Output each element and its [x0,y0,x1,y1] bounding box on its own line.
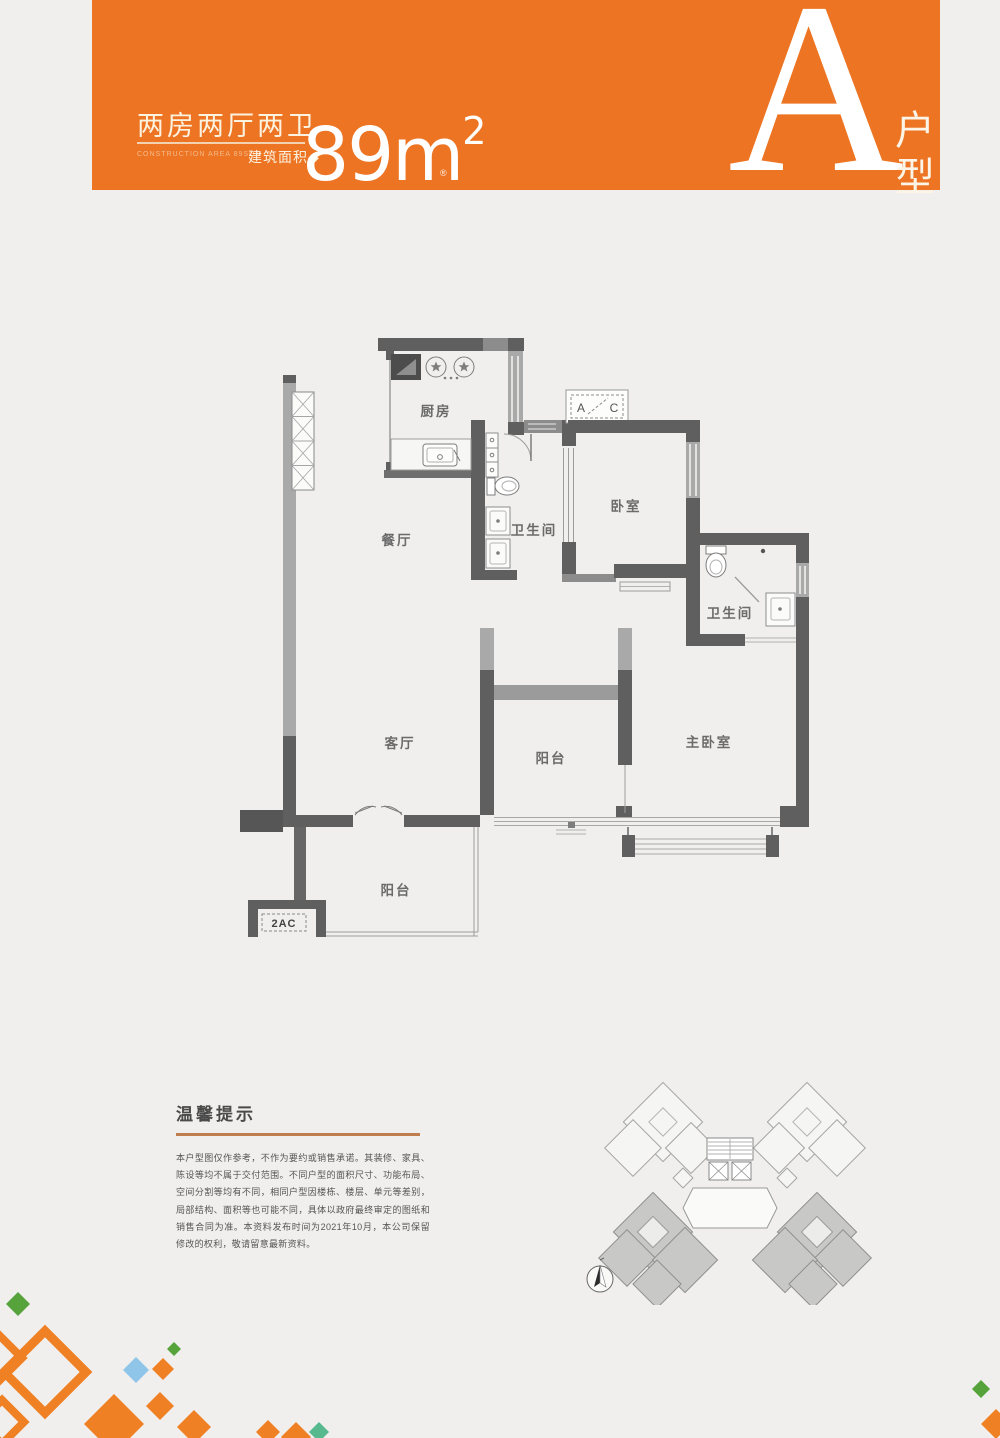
door-arc-icon [504,434,531,461]
ac-tag: A C [566,390,628,423]
unit-type-char-top: 户 [893,108,937,155]
room-label-dining: 餐厅 [381,532,413,548]
room-label-balcony-mid: 阳台 [536,750,567,766]
shower-head-icon [761,549,765,553]
area-superscript: 2 [462,109,486,153]
room-label-living: 客厅 [384,735,416,751]
floor-plan: 厨房 [240,330,840,940]
tips-section: 温馨提示 本户型图仅作参考，不作为要约或销售承诺。其装修、家具、陈设等均不属于交… [176,1100,430,1253]
english-subtitle: CONSTRUCTION AREA 89SQM [137,151,262,158]
decor-diamonds [0,1280,1000,1438]
shower-glass-icon [735,577,759,602]
left-wall [283,375,314,815]
room-label-kitchen: 厨房 [421,403,452,419]
elevator-icon [709,1162,751,1180]
room-label-balcony-bottom: 阳台 [381,882,412,898]
registered-mark: ® [440,168,447,178]
ac-tag-c: C [610,401,619,415]
keyplan-wing-nw [605,1082,717,1176]
keyplan-wing-ne [754,1082,866,1176]
unit-code-text: 2AC [271,918,296,930]
bathroom2 [688,533,809,646]
washbasin-icon [486,507,510,535]
area-value: 89m2 [302,96,486,190]
tips-underline [176,1133,420,1136]
diamond-cluster-icon [0,1292,329,1438]
diamond-corner-icon [972,1380,1000,1438]
bedroom-walls [568,420,700,646]
unit-type-char-bottom: 型 [893,155,937,202]
toilet-icon [706,546,726,577]
room-label-bedroom: 卧室 [611,498,642,514]
toilet-icon [487,477,519,495]
unit-type-vertical: 户 型 [893,108,937,202]
stove-icon [426,357,474,379]
tips-body: 本户型图仅作参考，不作为要约或销售承诺。其装修、家具、陈设等均不属于交付范围。不… [176,1150,430,1253]
unit-code-tag: 2AC [262,914,306,931]
ac-tag-a: A [577,401,585,415]
tips-title: 温馨提示 [176,1100,430,1125]
layout-title: 两房两厅两卫 [137,104,317,143]
header-banner: 两房两厅两卫 CONSTRUCTION AREA 89SQM 建筑面积◆ 89m… [92,0,940,190]
key-plan [575,1060,895,1305]
kitchen-sink-icon [391,439,471,470]
bottom-balcony: 2AC [248,827,478,937]
title-underline [137,142,305,144]
sliding-door-lines [564,448,574,542]
shower-tray-icon [486,539,510,568]
unit-letter: A [728,0,904,210]
fridge-icon [391,354,421,380]
washbasin-icon [766,593,795,626]
flyer-page: 两房两厅两卫 CONSTRUCTION AREA 89SQM 建筑面积◆ 89m… [0,0,1000,1438]
entry-door-icon [355,806,402,815]
h-partition-walls [480,628,632,815]
room-label-bath2: 卫生间 [707,605,754,621]
room-label-bath1: 卫生间 [511,522,558,538]
room-label-master: 主卧室 [686,734,733,750]
shaft-icon [292,392,314,490]
area-number: 89m [302,112,462,198]
living-bottom-wall [240,806,480,832]
